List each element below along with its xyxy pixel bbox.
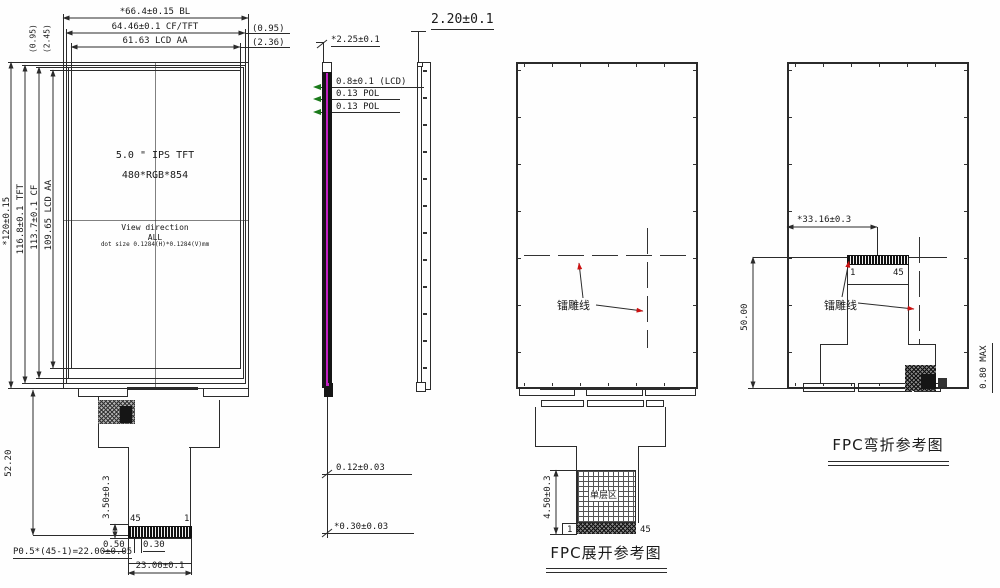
unfolded-caption: FPC展开参考图 — [536, 545, 676, 562]
fpc-edge — [535, 407, 536, 447]
edge-ticks-top — [524, 64, 690, 67]
caption-underline — [828, 461, 949, 462]
dim-h-cf-label: 113.7±0.1 CF — [30, 172, 40, 262]
edge-ticks-bottom — [524, 383, 690, 386]
stiffener-height-label: 3.50±0.3 — [102, 452, 112, 542]
ext-line — [8, 388, 63, 389]
back-outline — [787, 62, 969, 389]
lcd-engineering-drawing: *66.4±0.15 BL 64.46±0.1 CF/TFT 61.63 LCD… — [0, 0, 1000, 588]
profile-ticks — [423, 70, 427, 382]
fpc-bond-line — [127, 387, 198, 390]
edge-ticks-right — [693, 70, 696, 382]
bent-component-chip — [938, 378, 947, 387]
gap-left-1-label: (0.95) — [28, 19, 37, 59]
ext-line — [248, 14, 249, 62]
ext-line — [36, 67, 68, 68]
view-direction-label: View direction — [95, 223, 215, 232]
ext-line — [110, 524, 128, 525]
ext-line — [748, 388, 788, 389]
dim-h-aa-label: 109.65 LCD AA — [44, 170, 54, 260]
panel-resolution-label: 480*RGB*854 — [95, 170, 215, 182]
leader-line — [322, 533, 414, 534]
fpc-bond-line — [540, 387, 680, 390]
height-dim-label: 50.00 — [740, 272, 750, 362]
pol-thickness-label-2: 0.13 POL — [336, 102, 379, 112]
caption-underline — [546, 572, 667, 573]
pin-right-label: 45 — [640, 525, 651, 535]
offset-dim-label: *33.16±0.3 — [797, 215, 851, 225]
ext-line — [550, 470, 577, 471]
connector-width-label: 23.00±0.1 — [130, 561, 190, 571]
fpc-edge — [219, 400, 220, 448]
fpc-tail-line — [327, 388, 328, 538]
laser-centerline-v — [919, 237, 920, 345]
fpc-edge — [908, 344, 936, 345]
fpc-edge — [128, 447, 129, 527]
bent-caption: FPC弯折参考图 — [808, 437, 968, 454]
lcd-thickness-label: 0.8±0.1 (LCD) — [336, 77, 406, 87]
fpc-thickness-label: 0.12±0.03 — [336, 463, 385, 473]
pin-right-label: 1 — [184, 514, 189, 524]
h-centerline — [63, 220, 249, 221]
ext-line — [550, 534, 577, 535]
bottom-tab — [858, 383, 912, 392]
fpc-stiffener-bar — [541, 400, 584, 407]
ext-line — [71, 43, 72, 70]
laser-centerline-h — [524, 255, 690, 256]
module-thickness-label: 2.20±0.1 — [431, 13, 494, 30]
pitch-formula-label: P0.5*(45-1)=22.00±0.05 — [13, 547, 132, 559]
ext-line — [8, 62, 63, 63]
edge-ticks-top — [795, 64, 961, 67]
ext-line — [66, 29, 67, 65]
profile-top-notch — [417, 62, 423, 67]
fpc-stiffener-label: *0.30±0.03 — [334, 522, 388, 532]
dim-cftft-label: 64.46±0.1 CF/TFT — [95, 22, 215, 32]
bottom-tab — [203, 388, 249, 397]
connector-fingers — [128, 526, 192, 538]
pol-thickness-label-1: 0.13 POL — [336, 89, 379, 99]
contact-strip — [577, 523, 636, 534]
max-thickness-label: 0.80 MAX — [979, 322, 989, 412]
panel-size-label: 5.0 " IPS TFT — [95, 150, 215, 162]
connector-fingers — [847, 255, 909, 265]
fpc-edge — [638, 446, 666, 447]
ext-line — [63, 14, 64, 62]
fpc-stiffener-bar — [587, 400, 644, 407]
fpc-edge — [98, 447, 129, 448]
fpc-ic-die — [120, 406, 132, 423]
ext-line — [323, 42, 324, 62]
fpc-edge — [847, 285, 848, 345]
fpc-edge — [665, 407, 666, 447]
fold-line — [908, 257, 947, 258]
fpc-stiffener-bar — [646, 400, 664, 407]
bent-component-die — [921, 374, 936, 389]
ext-line — [877, 227, 878, 255]
ext-line — [246, 33, 290, 34]
ext-line — [50, 368, 71, 369]
dim-aa-label: 61.63 LCD AA — [95, 36, 215, 46]
ext-line — [36, 378, 68, 379]
fpc-edge — [820, 344, 848, 345]
ext-line — [22, 383, 66, 384]
ext-line — [245, 29, 246, 65]
caption-underline — [546, 568, 667, 569]
dim-h-bl-label: *120±0.15 — [2, 176, 12, 266]
ext-line — [110, 538, 128, 539]
caption-underline — [828, 465, 949, 466]
dim-h-tft-label: 116.8±0.1 TFT — [16, 174, 26, 264]
edge-ticks-left — [518, 70, 521, 382]
gap-left-2-label: (2.45) — [42, 19, 51, 59]
fpc-edge — [908, 285, 909, 345]
fpc-height-label: 4.50±0.3 — [543, 452, 553, 542]
total-thickness-label: *2.25±0.1 — [331, 35, 380, 47]
ext-line — [240, 43, 241, 70]
edge-ticks-right — [964, 70, 967, 382]
single-layer-label: 单层区 — [589, 491, 618, 501]
ext-line — [191, 564, 192, 575]
fold-line — [753, 257, 847, 258]
leader-line — [322, 474, 412, 475]
edge-ticks-left — [789, 70, 792, 382]
tick — [134, 538, 135, 553]
bottom-tab — [78, 388, 128, 397]
dim-bl-label: *66.4±0.15 BL — [95, 7, 215, 17]
ext-line — [50, 70, 71, 71]
tick — [141, 538, 142, 553]
laser-line-label: 镭雕线 — [557, 300, 590, 313]
polarizer-stripe — [326, 73, 328, 387]
ext-line — [128, 564, 129, 575]
side-component-dot — [326, 383, 329, 386]
pin-left-label: 45 — [130, 514, 141, 524]
pin-left-label: 1 — [850, 268, 855, 278]
fpc-edge — [638, 446, 639, 523]
fpc-edge — [190, 447, 191, 527]
pin-right-label: 45 — [893, 268, 904, 278]
profile-inner-wall — [421, 64, 422, 388]
fpc-edge — [189, 447, 220, 448]
ext-line — [22, 65, 66, 66]
back-outline — [516, 62, 698, 389]
laser-centerline-v — [647, 228, 648, 348]
fpc-edge — [820, 344, 821, 384]
laser-line-label: 镭雕线 — [824, 300, 857, 313]
profile-bottom-hook — [416, 382, 426, 392]
ext-line — [33, 535, 128, 536]
fpc-edge — [535, 446, 577, 447]
dot-size-label: dot size 0.1284(H)*0.1284(V)mm — [85, 242, 225, 249]
ext-line — [992, 343, 993, 393]
bottom-tab — [803, 383, 855, 392]
margin-030-label: 0.30 — [143, 540, 165, 552]
fpc-length-label: 52.20 — [4, 418, 14, 508]
ext-line — [418, 32, 419, 62]
